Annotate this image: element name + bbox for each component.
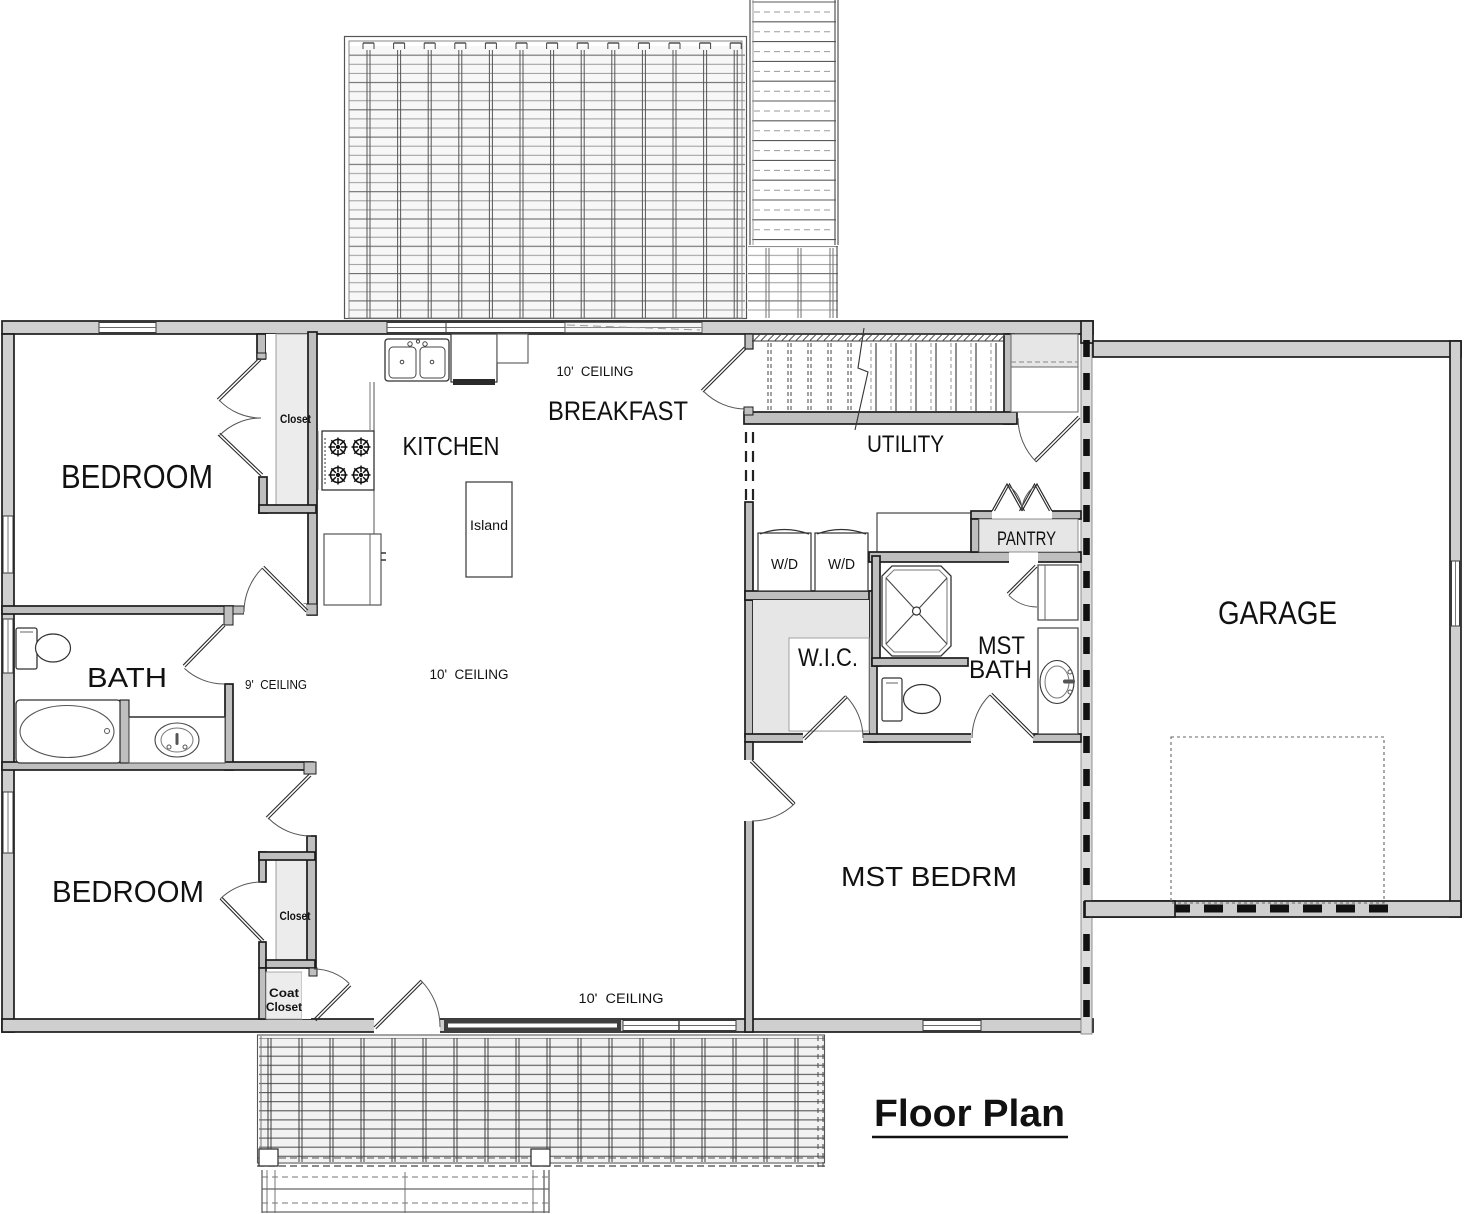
- svg-text:Coat: Coat: [269, 988, 299, 1000]
- svg-text:BREAKFAST: BREAKFAST: [548, 396, 688, 426]
- svg-text:Closet: Closet: [280, 911, 311, 923]
- svg-text:W/D: W/D: [828, 556, 855, 573]
- svg-text:W/D: W/D: [771, 556, 798, 573]
- svg-text:BEDROOM: BEDROOM: [61, 458, 213, 495]
- svg-text:GARAGE: GARAGE: [1218, 595, 1337, 631]
- svg-text:10' CEILING: 10' CEILING: [557, 364, 634, 379]
- svg-text:Island: Island: [470, 518, 508, 533]
- svg-text:Floor Plan: Floor Plan: [874, 1093, 1065, 1135]
- svg-text:BEDROOM: BEDROOM: [52, 874, 204, 909]
- svg-text:W.I.C.: W.I.C.: [798, 644, 858, 672]
- svg-text:10' CEILING: 10' CEILING: [430, 667, 509, 682]
- svg-text:Closet: Closet: [266, 1002, 302, 1014]
- svg-text:Closet: Closet: [280, 414, 311, 426]
- svg-text:10' CEILING: 10' CEILING: [579, 991, 664, 1006]
- svg-text:BATH: BATH: [87, 662, 167, 693]
- svg-text:9' CEILING: 9' CEILING: [245, 678, 307, 692]
- svg-text:UTILITY: UTILITY: [867, 431, 944, 458]
- svg-text:MST BEDRM: MST BEDRM: [841, 861, 1017, 892]
- svg-text:KITCHEN: KITCHEN: [403, 431, 500, 461]
- svg-text:PANTRY: PANTRY: [997, 528, 1056, 550]
- svg-text:BATH: BATH: [969, 656, 1032, 684]
